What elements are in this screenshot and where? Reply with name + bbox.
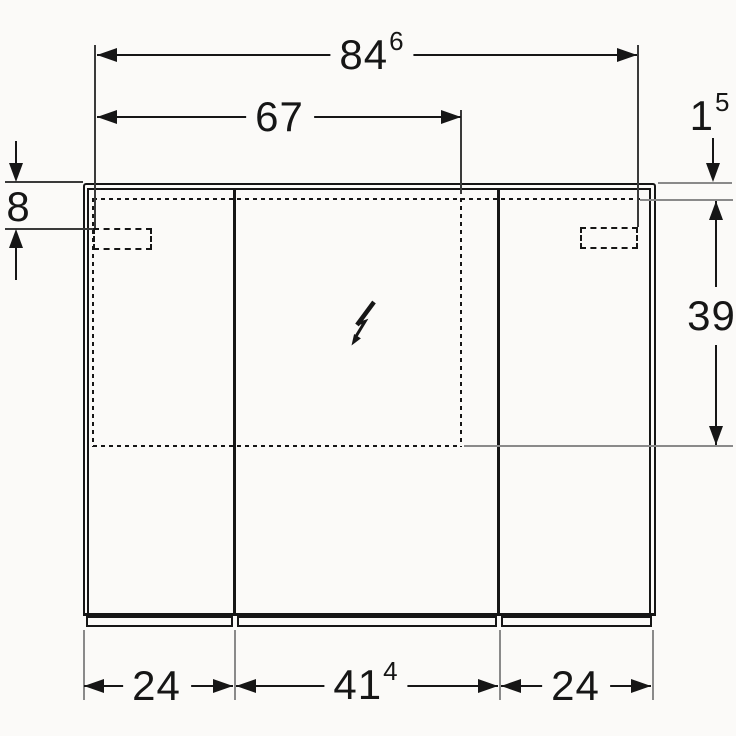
dimension-value: 8	[6, 183, 30, 230]
dimension-stem-8-bottom	[15, 248, 17, 280]
door-divider-right	[497, 190, 500, 613]
dimension-label-15: 15	[690, 95, 731, 137]
arrowhead-846-left	[97, 48, 117, 62]
dimension-value: 24	[551, 662, 600, 709]
dimension-value: 24	[132, 662, 181, 709]
dimension-superscript: 6	[389, 26, 404, 56]
dimension-value: 1	[690, 92, 714, 139]
arrowhead-8-down	[9, 163, 23, 182]
dimension-value: 41	[333, 661, 382, 708]
dimension-superscript: 4	[383, 656, 398, 686]
arrowhead-67-left	[97, 110, 117, 124]
arrowhead-414-right	[478, 679, 498, 693]
dimension-value: 84	[339, 31, 388, 78]
witness-line-15-top	[658, 182, 732, 184]
electrical-connection-icon	[345, 299, 381, 349]
cabinet-bottom-lip-middle	[237, 616, 497, 627]
dimension-label-24-left: 24	[123, 665, 191, 707]
arrowhead-414-left	[236, 679, 256, 693]
arrowhead-39-down	[709, 426, 723, 445]
dimension-value: 39	[687, 292, 736, 339]
arrowhead-24r-left	[501, 679, 521, 693]
mounting-bracket-right	[580, 227, 638, 249]
cabinet-inner-outline	[87, 188, 651, 613]
door-divider-left	[233, 190, 236, 613]
dimension-value: 67	[255, 93, 304, 140]
witness-line-left-846	[94, 45, 96, 228]
arrowhead-24l-left	[84, 679, 104, 693]
dimension-stem-8-top	[15, 141, 17, 163]
arrowhead-8-up	[9, 229, 23, 248]
arrowhead-24l-right	[213, 679, 233, 693]
recess-outline-top	[93, 198, 640, 200]
recess-outline-right	[460, 198, 462, 447]
witness-line-right-846	[637, 45, 639, 227]
cabinet-bottom-lip-left	[86, 616, 233, 627]
recess-outline-bottom	[93, 445, 461, 447]
dimension-label-414: 414	[324, 664, 407, 706]
dimension-label-67: 67	[246, 96, 314, 138]
dimension-label-8: 8	[6, 186, 31, 228]
dimension-label-846: 846	[330, 34, 413, 76]
witness-line-bottom-4	[652, 630, 654, 700]
arrowhead-67-right	[441, 110, 461, 124]
dimension-label-24-right: 24	[542, 665, 610, 707]
witness-line-39-bottom	[464, 445, 733, 447]
arrowhead-15-down	[706, 163, 720, 182]
arrowhead-846-right	[617, 48, 637, 62]
arrowhead-39-up	[709, 201, 723, 220]
dimension-stem-15	[712, 138, 714, 164]
dimension-superscript: 5	[715, 87, 730, 117]
arrowhead-24r-right	[631, 679, 651, 693]
dimension-label-39: 39	[684, 287, 736, 345]
technical-drawing-canvas: 846 67 15 39 8 24 414 24	[0, 0, 736, 736]
cabinet-bottom-lip-right	[501, 616, 652, 627]
mounting-bracket-left	[93, 228, 152, 250]
